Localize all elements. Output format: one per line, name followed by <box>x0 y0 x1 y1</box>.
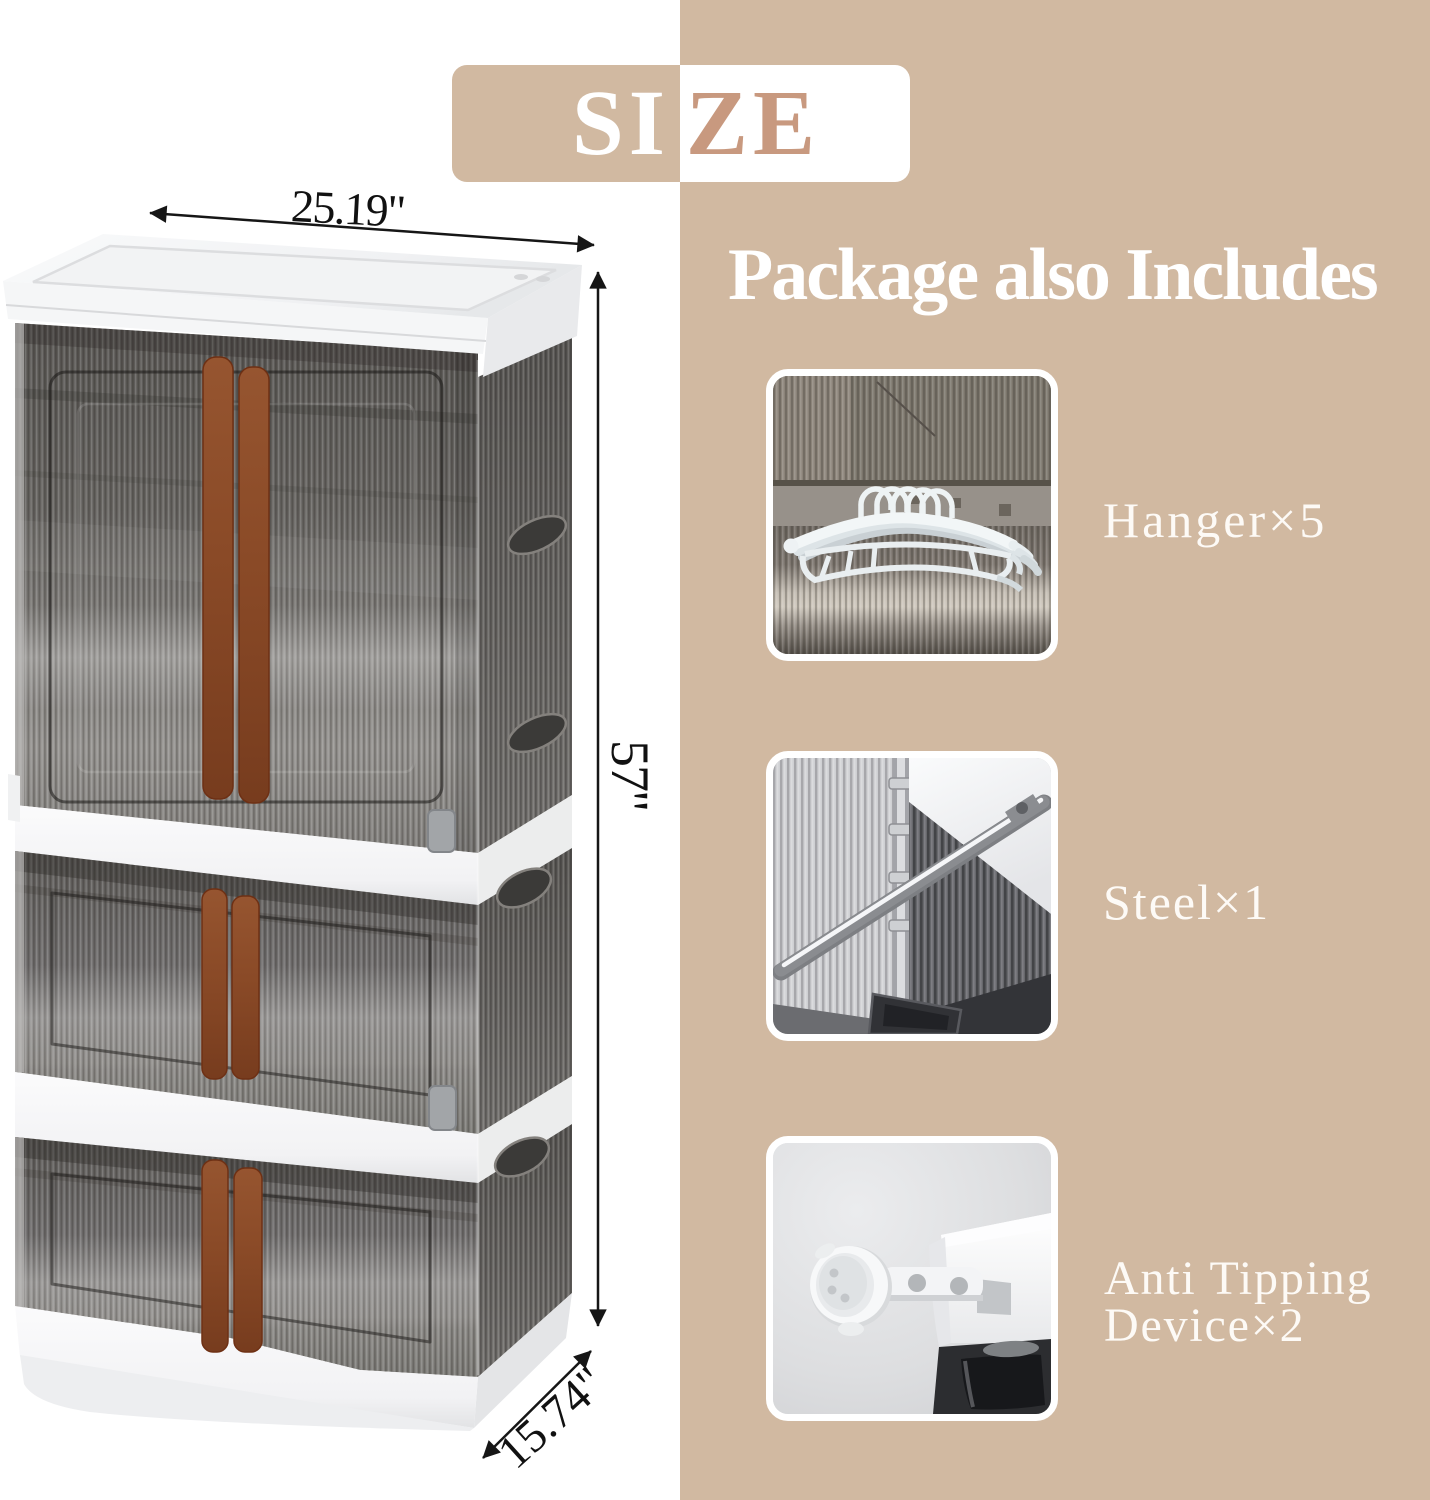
svg-text:57": 57" <box>600 740 660 810</box>
svg-text:25.19": 25.19" <box>290 180 406 237</box>
